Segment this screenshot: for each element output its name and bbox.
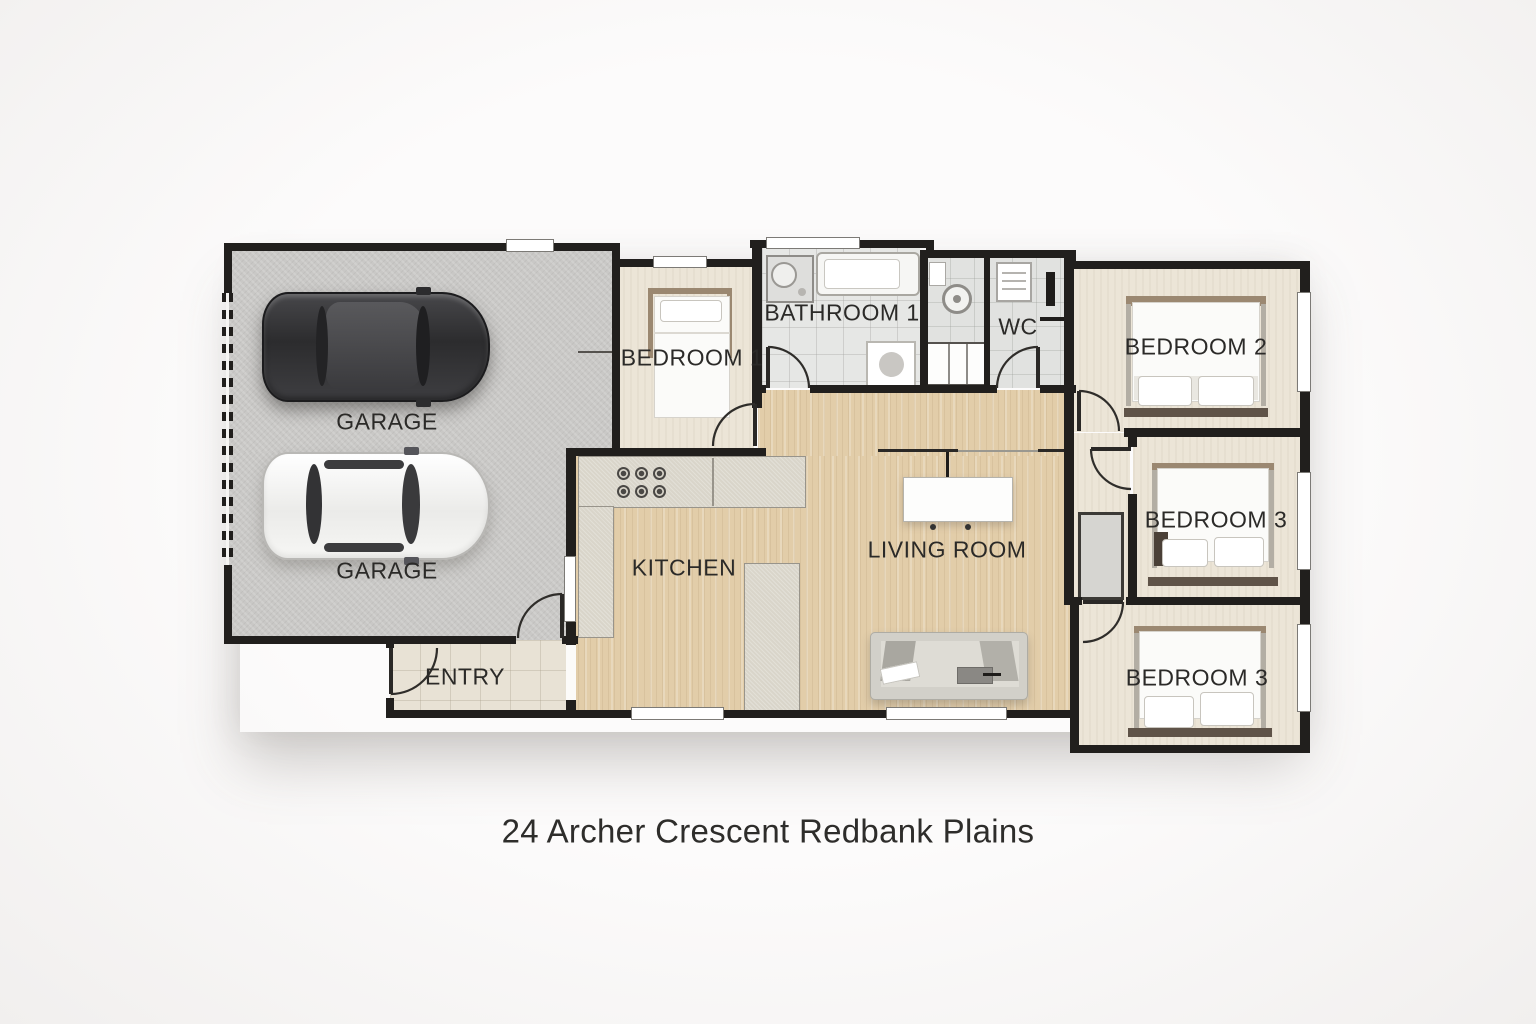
room-label-bedroom3-bottom: BEDROOM 3 [1126, 667, 1269, 690]
room-label-entry: ENTRY [425, 666, 505, 689]
room-label-living: LIVING ROOM [868, 539, 1027, 562]
room-label-kitchen: KITCHEN [632, 557, 736, 580]
room-label-bedroom2: BEDROOM 2 [1125, 336, 1268, 359]
plan-title: 24 Archer Crescent Redbank Plains [502, 815, 1035, 848]
room-label-garage-upper: GARAGE [336, 411, 437, 434]
room-label-bedroom1: BEDROOM 1 [621, 347, 764, 370]
room-label-bedroom3-middle: BEDROOM 3 [1145, 509, 1288, 532]
room-label-wc: WC [998, 316, 1037, 339]
room-label-bathroom1: BATHROOM 1 [764, 302, 919, 325]
door-swing-arcs [0, 0, 1536, 1024]
floor-plan: GARAGE GARAGE ENTRY BEDROOM 1 BATHROOM 1… [0, 0, 1536, 1024]
room-label-garage-lower: GARAGE [336, 560, 437, 583]
